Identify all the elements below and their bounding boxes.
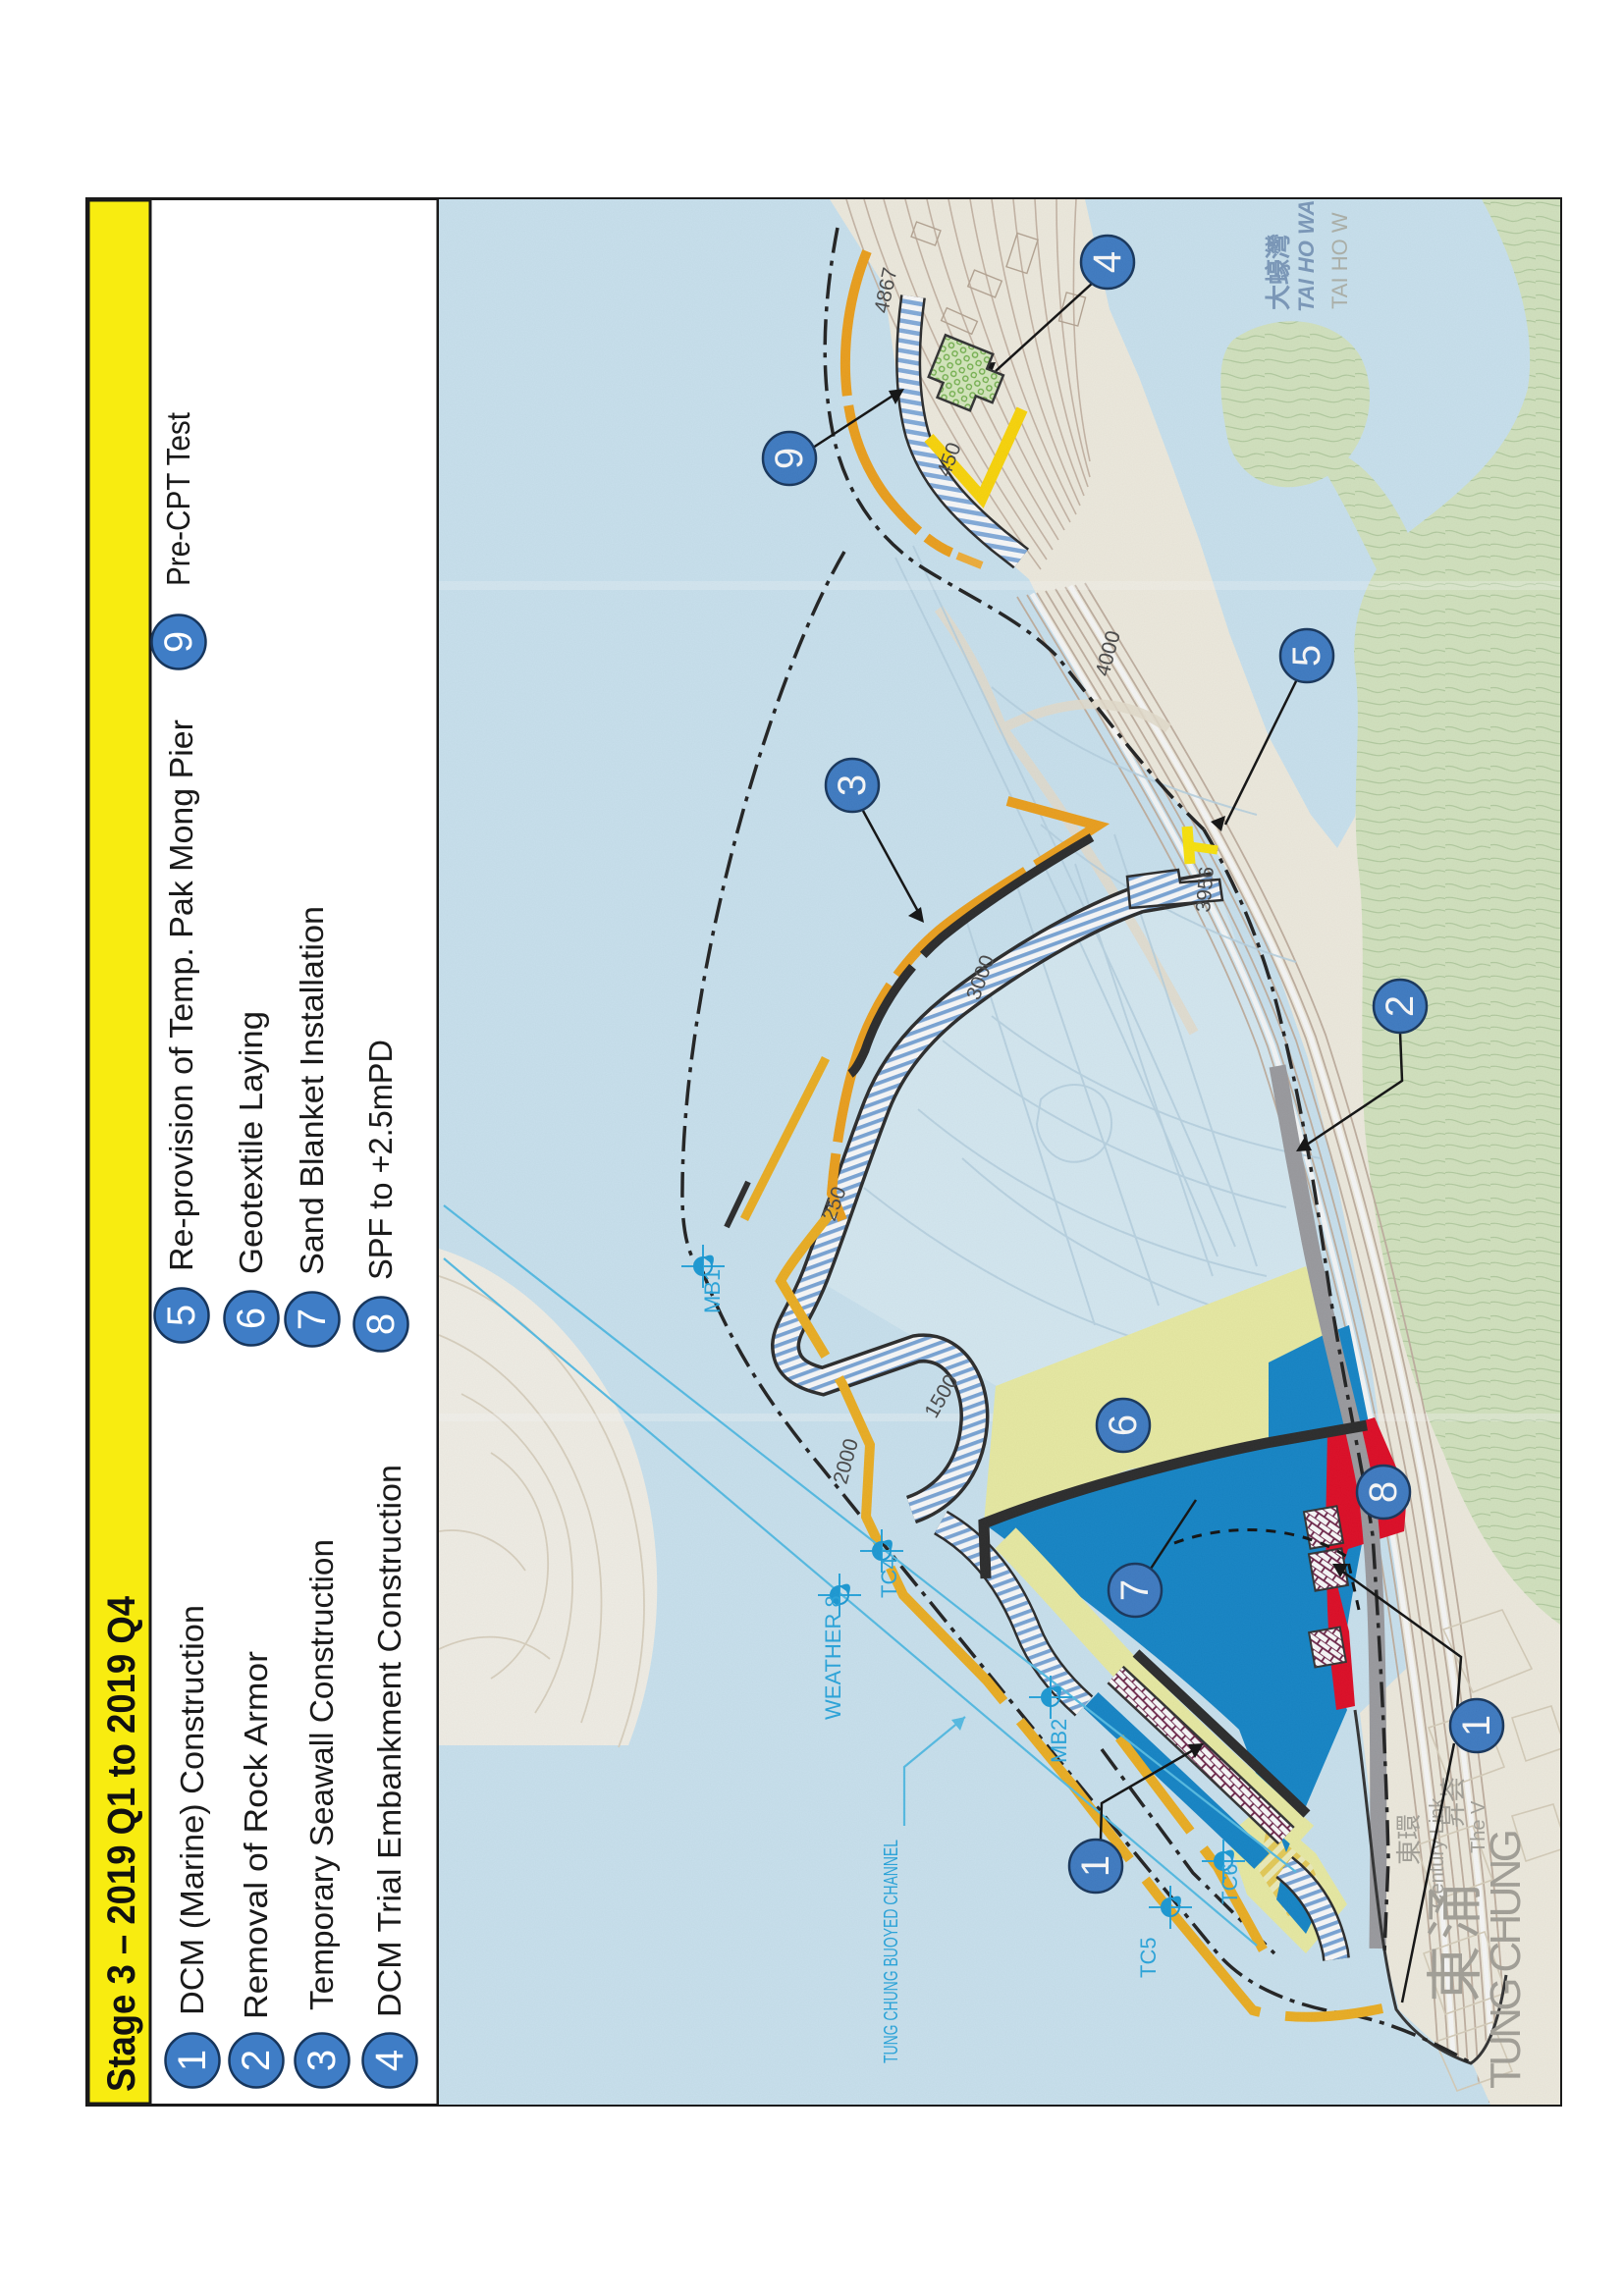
svg-text:Stage 3 – 2019 Q1 to 2019 Q4: Stage 3 – 2019 Q1 to 2019 Q4 bbox=[100, 1595, 143, 2092]
svg-text:6: 6 bbox=[230, 1308, 273, 1329]
svg-text:Sand Blanket Installation: Sand Blanket Installation bbox=[294, 906, 330, 1275]
svg-text:Removal of Rock Armor: Removal of Rock Armor bbox=[238, 1651, 274, 2019]
svg-text:5: 5 bbox=[160, 1305, 203, 1326]
svg-text:4: 4 bbox=[368, 2050, 411, 2071]
svg-text:SPF to +2.5mPD: SPF to +2.5mPD bbox=[362, 1040, 399, 1280]
svg-text:9: 9 bbox=[157, 631, 200, 653]
svg-text:8: 8 bbox=[359, 1313, 403, 1335]
svg-text:7: 7 bbox=[291, 1308, 334, 1330]
svg-text:1: 1 bbox=[171, 2050, 214, 2071]
svg-text:Re-provision of Temp. Pak Mong: Re-provision of Temp. Pak Mong Pier bbox=[163, 720, 199, 1271]
svg-text:3: 3 bbox=[300, 2050, 344, 2071]
svg-text:2: 2 bbox=[235, 2050, 278, 2071]
svg-text:Temporary Seawall Construction: Temporary Seawall Construction bbox=[303, 1539, 340, 2010]
svg-text:DCM (Marine) Construction: DCM (Marine) Construction bbox=[174, 1605, 210, 2015]
svg-text:DCM Trial Embankment Construct: DCM Trial Embankment Construction bbox=[371, 1465, 407, 2017]
svg-text:Geotextile Laying: Geotextile Laying bbox=[233, 1011, 269, 1274]
svg-text:Pre-CPT Test: Pre-CPT Test bbox=[160, 412, 196, 586]
